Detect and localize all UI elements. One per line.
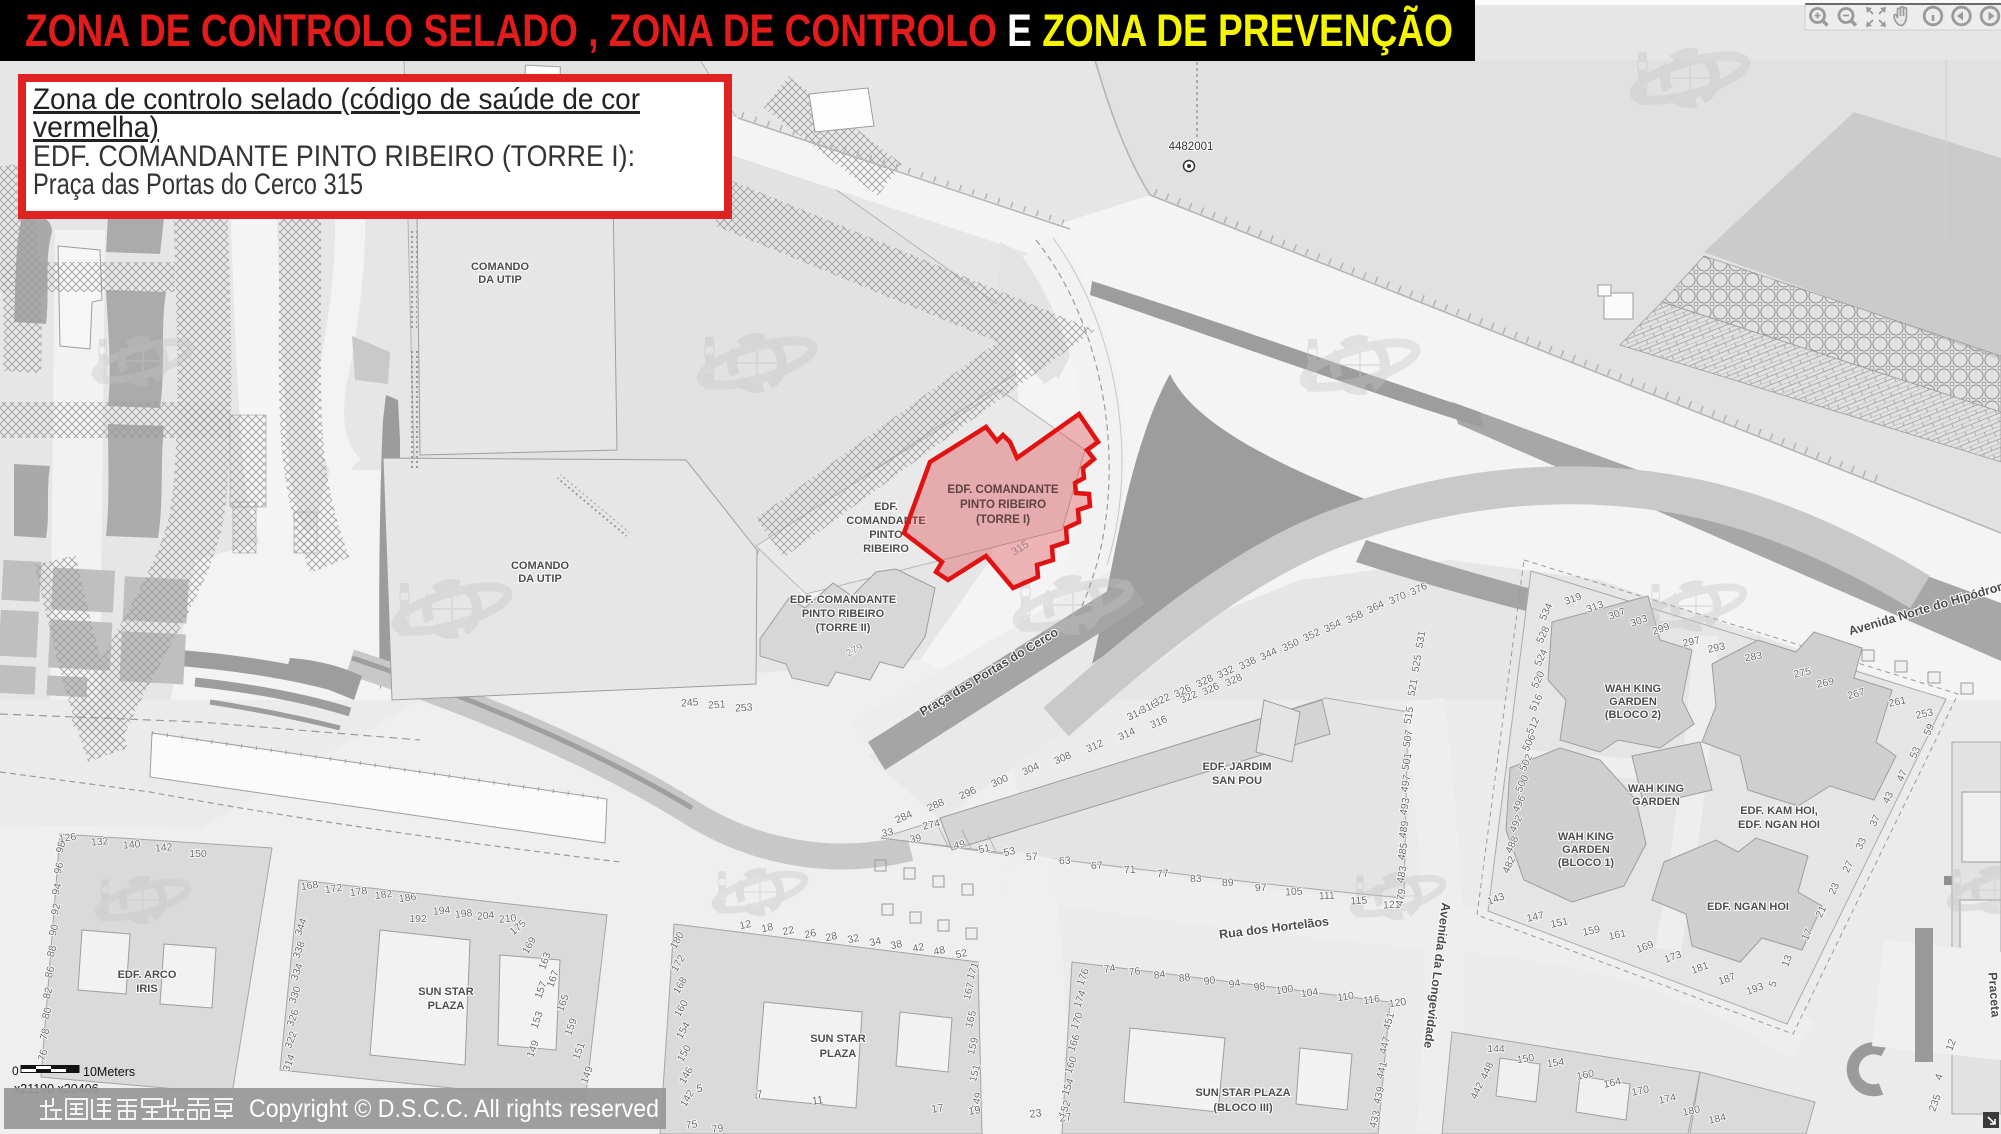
svg-text:105: 105 [1285, 886, 1303, 899]
svg-text:75: 75 [685, 1118, 698, 1132]
svg-text:EDF. COMANDANTE: EDF. COMANDANTE [790, 594, 896, 606]
svg-text:EDF. NGAN HOI: EDF. NGAN HOI [1707, 901, 1789, 913]
svg-text:192: 192 [409, 913, 427, 925]
svg-text:71: 71 [1124, 864, 1136, 877]
svg-text:116: 116 [1362, 993, 1380, 1007]
svg-text:97: 97 [1255, 882, 1267, 895]
svg-text:(BLOCO 1): (BLOCO 1) [1558, 857, 1615, 869]
svg-text:172: 172 [324, 882, 343, 896]
svg-text:194: 194 [432, 904, 451, 918]
svg-text:EDF. KAM HOI,: EDF. KAM HOI, [1740, 805, 1818, 817]
svg-text:DA UTIP: DA UTIP [518, 573, 562, 585]
svg-text:PLAZA: PLAZA [428, 1000, 465, 1012]
svg-text:144: 144 [1487, 1043, 1505, 1055]
svg-text:140: 140 [122, 838, 141, 851]
svg-text:PINTO: PINTO [869, 529, 903, 541]
svg-text:115: 115 [1350, 895, 1368, 908]
svg-text:251: 251 [708, 698, 726, 711]
svg-text:(TORRE I): (TORRE I) [976, 514, 1030, 526]
svg-text:120: 120 [1388, 996, 1407, 1010]
svg-text:4482001: 4482001 [1169, 141, 1214, 153]
svg-text:WAH KING: WAH KING [1628, 783, 1684, 795]
svg-text:EDF.: EDF. [874, 501, 898, 513]
svg-text:Copyright © D.S.C.C. All right: Copyright © D.S.C.C. All rights reserved [249, 1095, 659, 1123]
svg-text:150: 150 [189, 848, 207, 860]
svg-text:90: 90 [1203, 974, 1216, 988]
svg-text:WAH KING: WAH KING [1558, 831, 1614, 843]
svg-text:19: 19 [968, 1104, 982, 1118]
svg-text:33: 33 [881, 826, 895, 840]
svg-text:EDF. JARDIM: EDF. JARDIM [1202, 761, 1271, 773]
svg-text:(TORRE II): (TORRE II) [816, 622, 871, 634]
svg-text:110: 110 [1336, 990, 1354, 1004]
svg-text:204: 204 [476, 909, 495, 923]
svg-text:GARDEN: GARDEN [1609, 696, 1657, 708]
svg-text:17: 17 [931, 1102, 945, 1116]
svg-text:SUN STAR PLAZA: SUN STAR PLAZA [1195, 1087, 1290, 1099]
svg-text:PINTO RIBEIRO: PINTO RIBEIRO [960, 499, 1046, 511]
svg-text:Praça das Portas do Cerco 315: Praça das Portas do Cerco 315 [33, 168, 363, 201]
svg-text:198: 198 [454, 907, 473, 921]
svg-text:67: 67 [1091, 860, 1103, 873]
svg-text:GARDEN: GARDEN [1632, 796, 1680, 808]
svg-text:100: 100 [1275, 983, 1294, 997]
svg-text:GARDEN: GARDEN [1562, 844, 1610, 856]
svg-text:RIBEIRO: RIBEIRO [863, 543, 909, 555]
svg-text:84: 84 [1153, 968, 1166, 982]
svg-text:EDF. NGAN HOI: EDF. NGAN HOI [1738, 819, 1820, 831]
svg-text:0: 0 [12, 1064, 19, 1078]
svg-text:79: 79 [711, 1122, 724, 1134]
svg-text:10Meters: 10Meters [83, 1065, 135, 1079]
svg-text:11: 11 [811, 1094, 824, 1107]
svg-text:(BLOCO 2): (BLOCO 2) [1605, 709, 1662, 721]
svg-text:83: 83 [1190, 873, 1202, 886]
svg-text:SUN STAR: SUN STAR [810, 1033, 865, 1045]
svg-text:IRIS: IRIS [136, 983, 157, 995]
svg-text:182: 182 [374, 888, 393, 902]
svg-text:126: 126 [58, 831, 77, 845]
svg-text:154: 154 [1546, 1056, 1565, 1070]
svg-text:39: 39 [909, 832, 923, 846]
svg-text:98: 98 [1253, 980, 1266, 994]
svg-text:104: 104 [1300, 986, 1319, 1000]
svg-text:EDF. COMANDANTE: EDF. COMANDANTE [947, 484, 1058, 496]
svg-text:150: 150 [1516, 1052, 1535, 1066]
svg-text:94: 94 [1228, 977, 1241, 991]
svg-text:PLAZA: PLAZA [820, 1048, 857, 1060]
svg-text:EDF. ARCO: EDF. ARCO [118, 969, 177, 981]
svg-text:168: 168 [300, 879, 319, 893]
svg-text:186: 186 [398, 891, 417, 905]
svg-text:178: 178 [349, 885, 368, 899]
svg-text:57: 57 [1026, 851, 1038, 864]
svg-text:111: 111 [1319, 890, 1336, 903]
svg-text:(BLOCO III): (BLOCO III) [1213, 1102, 1273, 1114]
svg-text:COMANDO: COMANDO [511, 560, 569, 572]
svg-text:132: 132 [90, 835, 109, 848]
svg-text:PINTO RIBEIRO: PINTO RIBEIRO [802, 608, 885, 620]
svg-text:74: 74 [1103, 962, 1116, 976]
svg-text:SAN POU: SAN POU [1212, 775, 1262, 787]
svg-text:76: 76 [1128, 965, 1141, 979]
svg-text:77: 77 [1157, 868, 1169, 881]
svg-text:WAH KING: WAH KING [1605, 683, 1661, 695]
svg-text:SUN STAR: SUN STAR [418, 986, 473, 998]
svg-text:23: 23 [1029, 1107, 1043, 1121]
svg-text:89: 89 [1222, 877, 1234, 890]
svg-text:DA UTIP: DA UTIP [478, 274, 522, 286]
svg-text:245: 245 [681, 696, 699, 709]
svg-text:27: 27 [1059, 1111, 1073, 1125]
svg-text:253: 253 [735, 701, 753, 714]
svg-text:COMANDO: COMANDO [471, 261, 529, 273]
svg-text:ZONA DE CONTROLO SELADO , ZONA: ZONA DE CONTROLO SELADO , ZONA DE CONTRO… [25, 5, 1453, 56]
svg-text:88: 88 [1178, 971, 1191, 985]
svg-text:63: 63 [1059, 855, 1071, 868]
svg-text:142: 142 [154, 841, 173, 854]
